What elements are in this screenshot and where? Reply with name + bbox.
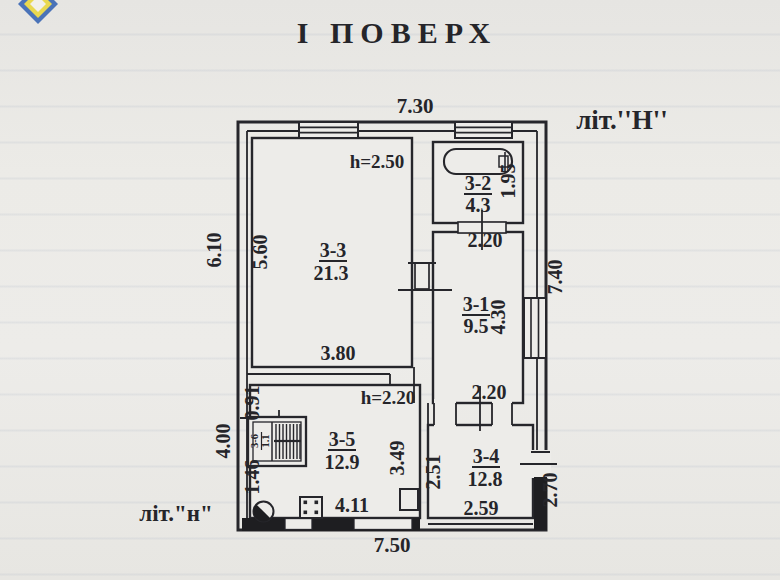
dim-3-3-left: 5.60: [249, 235, 271, 270]
page-title: І ПОВЕРХ: [297, 16, 497, 49]
dim-right-full: 7.40: [544, 260, 566, 295]
dim-stair-top: 0.91: [241, 386, 263, 421]
room-area-3-6: 1.1: [260, 434, 271, 447]
scanned-floor-plan-page: І ПОВЕРХ: [0, 0, 780, 580]
dim-3-2-right: 1.95: [497, 164, 519, 199]
floor-plan-drawing: І ПОВЕРХ: [0, 0, 780, 580]
column-icon: [300, 497, 322, 518]
dim-3-1-bottom: 2.20: [472, 381, 507, 403]
room-area-3-3: 21.3: [314, 262, 349, 284]
window-icon: [455, 122, 512, 138]
room-number-3-2: 3-2: [465, 172, 492, 194]
dim-3-3-bottom: 3.80: [321, 342, 356, 364]
room-area-3-2: 4.3: [466, 194, 491, 216]
window-icon: [524, 298, 546, 358]
room-number-3-5: 3-5: [329, 428, 356, 450]
dim-bottom-width: 7.50: [374, 533, 411, 557]
window-icon: [354, 519, 412, 530]
window-icon: [285, 519, 312, 530]
room-number-3-1: 3-1: [463, 293, 490, 315]
window-icon: [299, 122, 358, 138]
building-letter-top: літ.''Н'': [576, 105, 668, 135]
ceiling-height-3-3: h=2.50: [350, 151, 405, 172]
room-number-3-3: 3-3: [320, 239, 347, 261]
dim-3-5-right: 3.49: [386, 441, 408, 476]
room-number-3-4: 3-4: [473, 445, 500, 467]
ceiling-height-3-5: h=2.20: [361, 387, 416, 408]
dim-3-5-bottom: 4.11: [335, 494, 369, 516]
dim-3-1-right: 4.30: [487, 300, 509, 335]
watermark-logo-icon: [18, 0, 58, 24]
dim-left-upper: 6.10: [203, 233, 225, 268]
dim-stair-bottom: 1.46: [241, 460, 263, 495]
dim-3-2-bottom: 2.20: [468, 229, 503, 251]
room-area-3-4: 12.8: [468, 468, 503, 490]
wall-niche-icon: [400, 489, 418, 510]
dim-right-lower: 2.70: [539, 473, 561, 508]
dim-top-width: 7.30: [397, 94, 434, 118]
dim-3-4-bottom: 2.59: [464, 497, 499, 519]
dim-left-lower: 4.00: [212, 424, 234, 459]
room-number-3-6: 3-6: [249, 434, 260, 448]
room-area-3-5: 12.9: [325, 451, 360, 473]
room-area-3-1: 9.5: [464, 315, 489, 337]
dim-3-4-left: 2.51: [422, 455, 444, 490]
building-letter-bottom: літ."н": [139, 501, 212, 526]
stove-icon: [253, 502, 273, 522]
